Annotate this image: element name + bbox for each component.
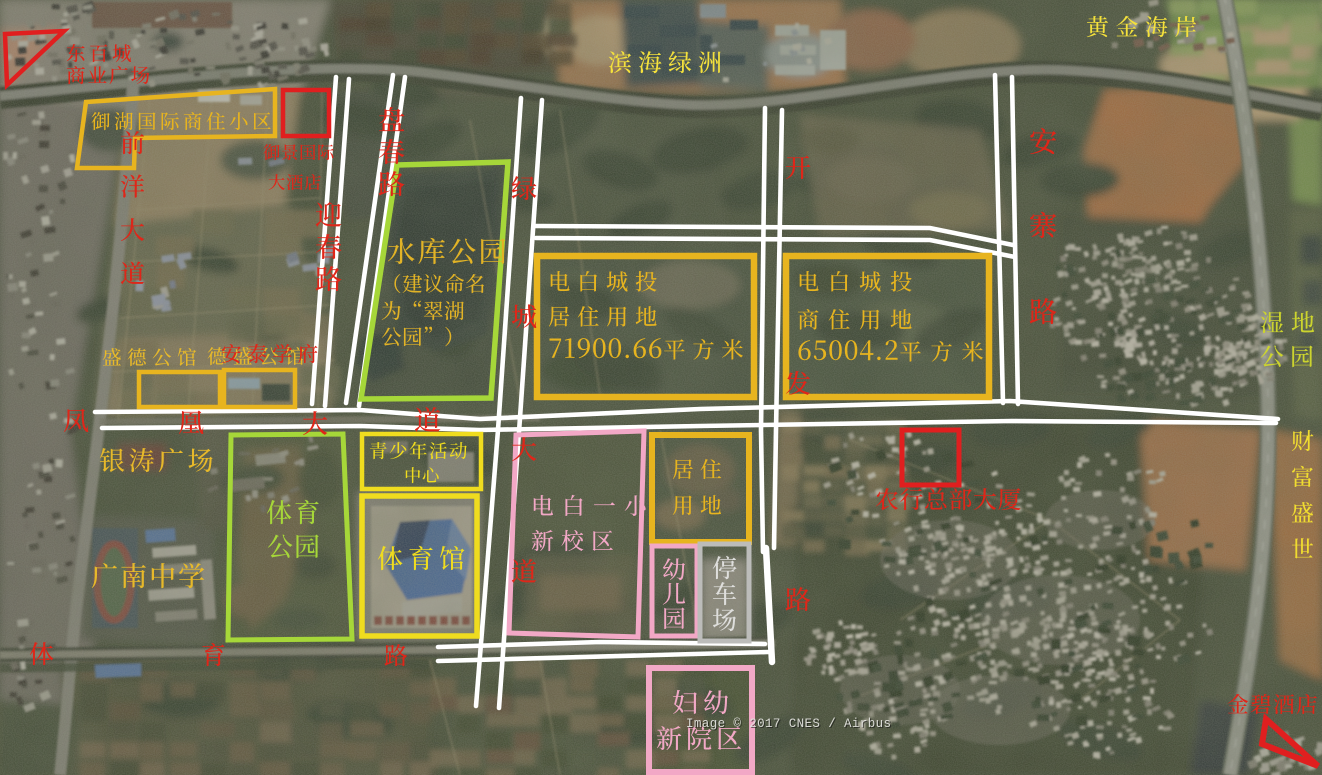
svg-text:Image © 2017 CNES / Airbus: Image © 2017 CNES / Airbus — [686, 717, 891, 731]
